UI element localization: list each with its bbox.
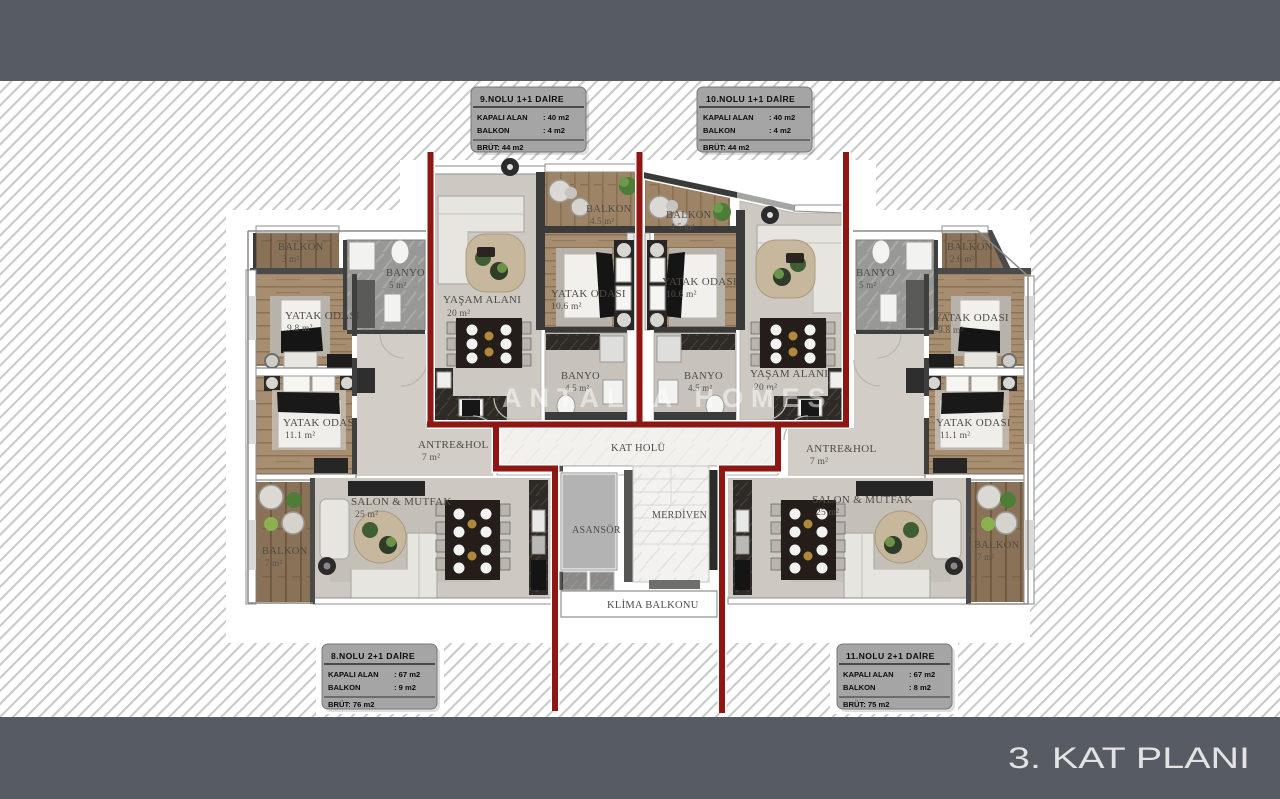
svg-text:BRÜT: 44 m2: BRÜT: 44 m2 — [477, 143, 523, 152]
svg-text:BALKON: BALKON — [328, 683, 360, 692]
svg-text:BALKON: BALKON — [262, 546, 308, 557]
svg-text:BALKON: BALKON — [947, 242, 993, 253]
svg-text:ANTALYA HOMES: ANTALYA HOMES — [502, 383, 834, 413]
svg-text:: 4 m2: : 4 m2 — [543, 126, 565, 135]
svg-text:8.NOLU 2+1 DAİRE: 8.NOLU 2+1 DAİRE — [331, 651, 415, 661]
svg-text:BANYO: BANYO — [684, 371, 723, 382]
svg-text:BALKON: BALKON — [843, 683, 875, 692]
svg-text:BALKON: BALKON — [666, 210, 712, 221]
svg-text:BRÜT: 44 m2: BRÜT: 44 m2 — [703, 143, 749, 152]
svg-text:KAPALI ALAN: KAPALI ALAN — [477, 113, 528, 122]
svg-text:7 m²: 7 m² — [977, 552, 994, 562]
svg-text:SALON & MUTFAK: SALON & MUTFAK — [812, 494, 913, 506]
svg-text:2.6 m²: 2.6 m² — [950, 254, 975, 264]
svg-text:: 40 m2: : 40 m2 — [543, 113, 569, 122]
svg-text:9.NOLU 1+1 DAİRE: 9.NOLU 1+1 DAİRE — [480, 94, 564, 104]
svg-text:7 m²: 7 m² — [265, 558, 282, 568]
svg-text:BANYO: BANYO — [386, 268, 425, 279]
svg-text:BRÜT: 76 m2: BRÜT: 76 m2 — [328, 700, 374, 709]
svg-text:YATAK ODASI: YATAK ODASI — [551, 288, 626, 300]
svg-text:KAPALI ALAN: KAPALI ALAN — [703, 113, 754, 122]
svg-text:ANTRE&HOL: ANTRE&HOL — [806, 443, 877, 455]
svg-text:BALKON: BALKON — [278, 242, 324, 253]
svg-text:KAT HOLÜ: KAT HOLÜ — [611, 442, 666, 454]
svg-text:ASANSÖR: ASANSÖR — [572, 524, 621, 536]
svg-text:3 m²: 3 m² — [282, 254, 299, 264]
svg-text:11.1 m²: 11.1 m² — [285, 431, 315, 441]
svg-text:YATAK ODASI: YATAK ODASI — [283, 417, 358, 429]
svg-text:7 m²: 7 m² — [422, 453, 440, 463]
svg-text:BRÜT: 75 m2: BRÜT: 75 m2 — [843, 700, 889, 709]
svg-text:KAPALI ALAN: KAPALI ALAN — [843, 670, 894, 679]
svg-text:KAPALI ALAN: KAPALI ALAN — [328, 670, 379, 679]
svg-text:4.5 m²: 4.5 m² — [670, 222, 695, 232]
svg-text:25 m²: 25 m² — [355, 510, 378, 520]
svg-text:25 m²: 25 m² — [816, 508, 839, 518]
svg-text:10.NOLU 1+1 DAİRE: 10.NOLU 1+1 DAİRE — [706, 94, 795, 104]
svg-text:5 m²: 5 m² — [389, 280, 406, 290]
svg-text:10.6 m²: 10.6 m² — [551, 302, 582, 312]
svg-text:BALKON: BALKON — [586, 204, 632, 215]
svg-text:20 m²: 20 m² — [447, 309, 470, 319]
svg-text:KLİMA BALKONU: KLİMA BALKONU — [607, 599, 699, 611]
svg-text:YAŞAM ALANI: YAŞAM ALANI — [750, 368, 828, 380]
svg-text:ANTRE&HOL: ANTRE&HOL — [418, 439, 489, 451]
svg-text:BALKON: BALKON — [477, 126, 509, 135]
svg-text:YATAK ODASI: YATAK ODASI — [285, 310, 360, 322]
svg-text:: 67 m2: : 67 m2 — [394, 670, 420, 679]
svg-text:: 9 m2: : 9 m2 — [394, 683, 416, 692]
svg-text:11.1 m²: 11.1 m² — [940, 431, 970, 441]
svg-text:9.8 m²: 9.8 m² — [938, 326, 964, 336]
svg-text:MERDİVEN: MERDİVEN — [652, 509, 707, 521]
svg-text:: 67 m2: : 67 m2 — [909, 670, 935, 679]
svg-text:7 m²: 7 m² — [810, 457, 828, 467]
svg-text:BALKON: BALKON — [703, 126, 735, 135]
svg-text:: 8 m2: : 8 m2 — [909, 683, 931, 692]
svg-text:BANYO: BANYO — [856, 268, 895, 279]
svg-text:SALON & MUTFAK: SALON & MUTFAK — [351, 496, 452, 508]
svg-text:3. KAT PLANI: 3. KAT PLANI — [1008, 742, 1250, 775]
svg-text:9.8 m²: 9.8 m² — [287, 324, 313, 334]
svg-text:YATAK ODASI: YATAK ODASI — [936, 417, 1011, 429]
svg-text:10.6 m²: 10.6 m² — [666, 290, 697, 300]
svg-text:11.NOLU 2+1 DAİRE: 11.NOLU 2+1 DAİRE — [846, 651, 935, 661]
svg-text:BALKON: BALKON — [974, 540, 1020, 551]
svg-text:YATAK ODASI: YATAK ODASI — [934, 312, 1009, 324]
svg-text:: 40 m2: : 40 m2 — [769, 113, 795, 122]
svg-text:YAŞAM ALANI: YAŞAM ALANI — [443, 294, 521, 306]
svg-text:4.5 m²: 4.5 m² — [590, 216, 615, 226]
svg-text:YATAK ODASI: YATAK ODASI — [662, 276, 737, 288]
svg-text:5 m²: 5 m² — [859, 280, 876, 290]
svg-text:BANYO: BANYO — [561, 371, 600, 382]
svg-text:: 4 m2: : 4 m2 — [769, 126, 791, 135]
